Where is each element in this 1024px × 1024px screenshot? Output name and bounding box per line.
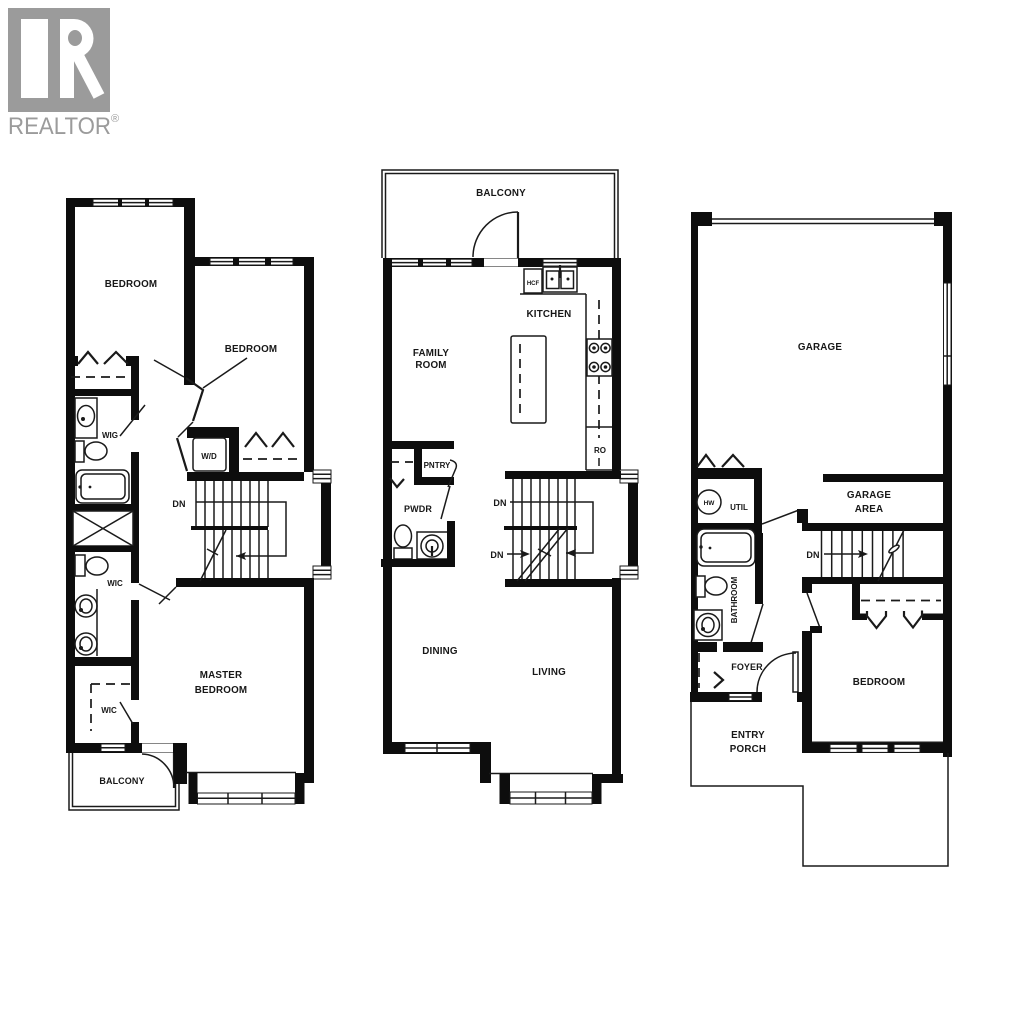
svg-text:WIG: WIG	[102, 431, 118, 440]
svg-text:GARAGE: GARAGE	[798, 342, 842, 353]
svg-text:BATHROOM: BATHROOM	[730, 576, 739, 623]
svg-text:DN: DN	[493, 498, 506, 508]
svg-text:HW: HW	[704, 500, 716, 507]
svg-text:BALCONY: BALCONY	[476, 188, 526, 199]
svg-text:BEDROOM: BEDROOM	[105, 279, 158, 290]
svg-text:W/D: W/D	[201, 452, 217, 461]
svg-text:AREA: AREA	[855, 504, 884, 515]
svg-text:BEDROOM: BEDROOM	[195, 685, 248, 696]
svg-text:DN: DN	[490, 550, 503, 560]
svg-text:ENTRY: ENTRY	[731, 730, 765, 741]
svg-text:PWDR: PWDR	[404, 504, 432, 514]
svg-text:BALCONY: BALCONY	[99, 776, 144, 786]
svg-text:®: ®	[111, 113, 119, 125]
svg-text:LIVING: LIVING	[532, 667, 566, 678]
svg-text:REALTOR: REALTOR	[8, 113, 111, 140]
svg-text:WIC: WIC	[101, 706, 117, 715]
svg-text:GARAGE: GARAGE	[847, 490, 891, 501]
svg-text:DN: DN	[172, 499, 185, 509]
svg-text:MASTER: MASTER	[200, 670, 243, 681]
svg-text:BEDROOM: BEDROOM	[853, 677, 906, 688]
svg-text:WIC: WIC	[107, 579, 123, 588]
svg-text:DINING: DINING	[422, 646, 458, 657]
svg-text:PNTRY: PNTRY	[424, 461, 451, 470]
svg-text:BEDROOM: BEDROOM	[225, 344, 278, 355]
svg-text:RO: RO	[594, 446, 606, 455]
svg-text:ROOM: ROOM	[415, 360, 446, 371]
svg-text:DN: DN	[806, 550, 819, 560]
svg-text:FOYER: FOYER	[731, 662, 763, 672]
svg-text:HCF: HCF	[527, 281, 540, 287]
svg-text:PORCH: PORCH	[730, 744, 766, 755]
svg-text:FAMILY: FAMILY	[413, 348, 449, 359]
svg-text:UTIL: UTIL	[730, 503, 748, 512]
svg-text:KITCHEN: KITCHEN	[527, 309, 572, 320]
